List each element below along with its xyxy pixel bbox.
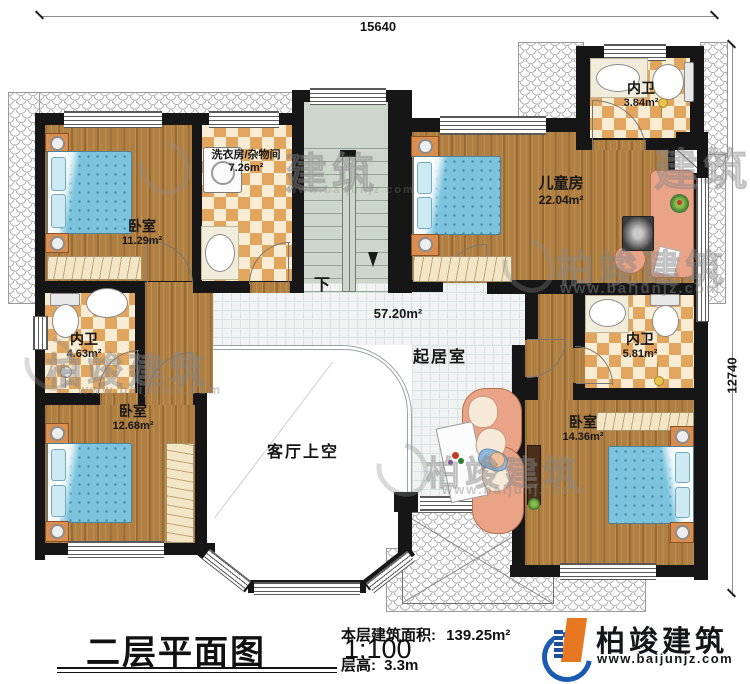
watermark-url: www.baijunjz.com bbox=[288, 184, 415, 196]
sink bbox=[589, 299, 626, 327]
wardrobe bbox=[47, 256, 142, 280]
floor-height-label: 层高: bbox=[341, 657, 376, 674]
lamp-icon bbox=[418, 237, 433, 252]
room-label-bath-right: 内卫 5.81m² bbox=[623, 331, 658, 361]
company-logo-icon bbox=[540, 612, 594, 678]
light-fixture bbox=[658, 98, 668, 108]
sink bbox=[205, 234, 235, 272]
floor-height-value: 3.3m bbox=[384, 657, 418, 674]
dimension-tick bbox=[710, 10, 719, 19]
pillow bbox=[417, 197, 432, 229]
wardrobe bbox=[166, 443, 194, 543]
bed bbox=[47, 443, 132, 523]
stair-down-arrow bbox=[368, 252, 378, 267]
room-label-void: 客厅上空 bbox=[267, 443, 339, 462]
window bbox=[310, 88, 386, 105]
room-label-bedroom-br: 卧室 14.36m² bbox=[563, 414, 604, 444]
wall bbox=[573, 292, 585, 348]
room-label-laundry: 洗衣房/杂物间 7.26m² bbox=[211, 149, 280, 175]
room-label-living-area: 57.20m² bbox=[374, 306, 422, 322]
watermark-url: www.baijunjz.com bbox=[560, 280, 721, 297]
pillow bbox=[675, 487, 690, 518]
window bbox=[560, 563, 656, 580]
wardrobe bbox=[413, 256, 512, 282]
nightstand bbox=[411, 136, 439, 157]
light-fixture-stem bbox=[657, 362, 658, 376]
wall bbox=[525, 377, 538, 400]
top-dimension-label: 15640 bbox=[318, 19, 438, 34]
lamp-icon bbox=[675, 525, 690, 540]
company-url: www.baijunjz.com bbox=[597, 651, 733, 666]
lamp-icon bbox=[50, 136, 65, 151]
nightstand bbox=[411, 234, 439, 256]
watermark-text: 建筑 bbox=[654, 134, 750, 198]
pillow bbox=[51, 194, 66, 228]
top-dimension-line bbox=[40, 16, 716, 17]
lamp-icon bbox=[675, 429, 690, 444]
window bbox=[209, 111, 279, 128]
stair-down-label: 下 bbox=[314, 276, 330, 295]
light-fixture-stem bbox=[661, 106, 662, 118]
wall bbox=[576, 46, 590, 150]
door-opening bbox=[538, 388, 573, 400]
watermark-url: www.baijunjz.com bbox=[78, 382, 222, 397]
toilet-tank bbox=[684, 62, 694, 102]
logo-column-icon bbox=[554, 628, 563, 658]
room-label-kids: 儿童房 22.04m² bbox=[538, 175, 583, 207]
pillow bbox=[675, 452, 690, 483]
bed bbox=[47, 151, 132, 234]
room-label-bedroom-tl: 卧室 11.29m² bbox=[122, 218, 162, 248]
pillow bbox=[51, 485, 66, 517]
pillow bbox=[417, 162, 432, 194]
sink bbox=[86, 288, 128, 318]
nightstand bbox=[45, 233, 69, 253]
lamp-icon bbox=[418, 139, 433, 154]
dimension-tick bbox=[35, 10, 44, 19]
watermark-url: www.baijunjz.com bbox=[442, 482, 586, 497]
plant bbox=[528, 498, 540, 510]
window bbox=[68, 541, 164, 558]
pillow bbox=[51, 449, 66, 481]
nightstand bbox=[670, 522, 694, 543]
nightstand bbox=[670, 426, 694, 447]
title-underline bbox=[57, 672, 337, 673]
nightstand bbox=[45, 133, 69, 152]
wall bbox=[573, 388, 708, 400]
flower-icon bbox=[677, 200, 682, 205]
floor-area-label: 本层建筑面积: bbox=[341, 627, 436, 644]
floor-area-text: 本层建筑面积: 139.25m² bbox=[341, 624, 510, 645]
room-label-living: 起居室 bbox=[413, 348, 467, 367]
window bbox=[440, 116, 546, 135]
pillow bbox=[51, 157, 66, 191]
bed bbox=[608, 446, 694, 524]
lamp-icon bbox=[50, 236, 65, 251]
light-fixture bbox=[654, 376, 664, 386]
nightstand bbox=[45, 521, 69, 542]
window-bay-left bbox=[202, 549, 251, 591]
bed bbox=[413, 156, 501, 235]
wall bbox=[195, 393, 207, 555]
lamp-icon bbox=[50, 426, 65, 441]
lamp-icon bbox=[50, 524, 65, 539]
nightstand bbox=[45, 423, 69, 444]
sofa-cushion bbox=[468, 396, 498, 428]
title-underline bbox=[57, 667, 337, 669]
room-label-bedroom-bl: 卧室 12.68m² bbox=[113, 403, 154, 433]
floor-height-text: 层高: 3.3m bbox=[341, 654, 418, 675]
window-bay-center bbox=[254, 582, 360, 595]
right-dimension-line bbox=[732, 46, 733, 596]
floor-area-value: 139.25m² bbox=[446, 627, 510, 644]
right-dimension-label: 12740 bbox=[725, 346, 740, 406]
wall bbox=[525, 292, 538, 340]
room-label-bath-top: 内卫 3.84m² bbox=[624, 80, 659, 110]
window bbox=[64, 111, 162, 128]
floor-plan: 15640 12740 bbox=[0, 0, 750, 684]
